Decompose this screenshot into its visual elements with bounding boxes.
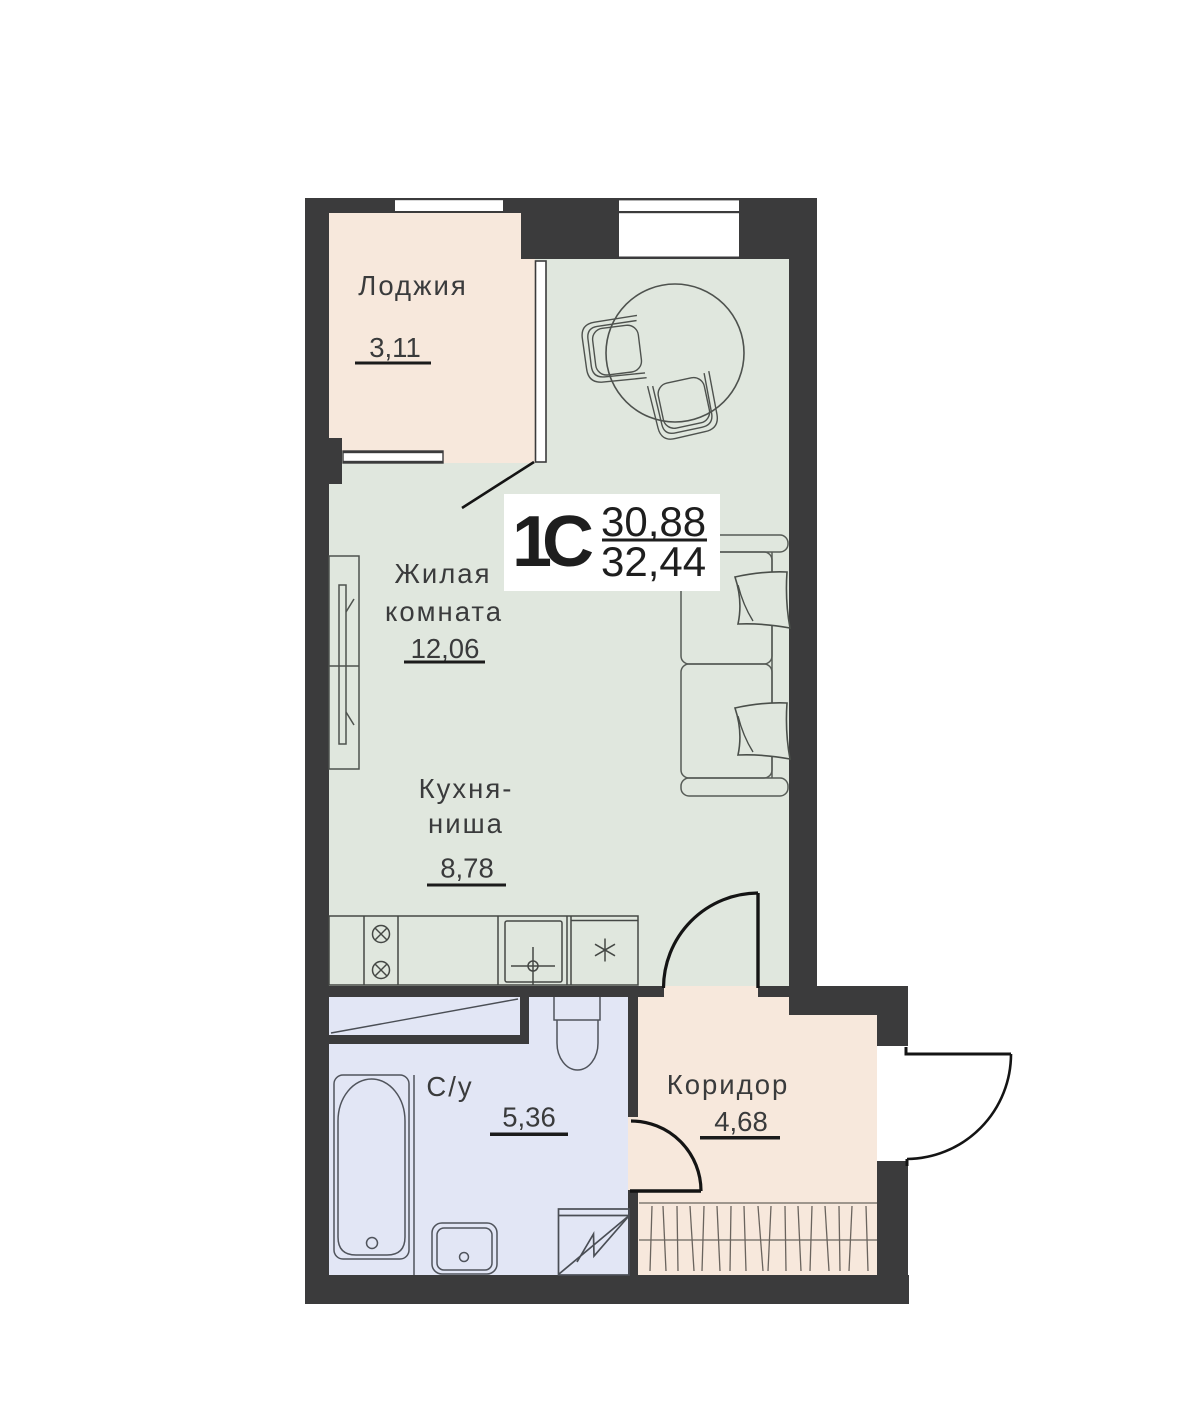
svg-text:Лоджия: Лоджия <box>358 270 467 301</box>
svg-text:8,78: 8,78 <box>440 853 494 884</box>
svg-text:С/у: С/у <box>426 1071 473 1102</box>
svg-text:12,06: 12,06 <box>411 633 480 664</box>
svg-text:Жилая: Жилая <box>395 558 492 589</box>
svg-text:32,44: 32,44 <box>601 538 706 585</box>
svg-text:4,68: 4,68 <box>714 1106 768 1137</box>
svg-text:Кухня-: Кухня- <box>419 773 514 804</box>
svg-text:ниша: ниша <box>428 808 504 839</box>
svg-text:С: С <box>542 502 594 582</box>
svg-text:5,36: 5,36 <box>502 1102 556 1133</box>
svg-text:3,11: 3,11 <box>369 332 420 363</box>
svg-text:Коридор: Коридор <box>667 1069 790 1100</box>
svg-text:комната: комната <box>385 596 503 627</box>
